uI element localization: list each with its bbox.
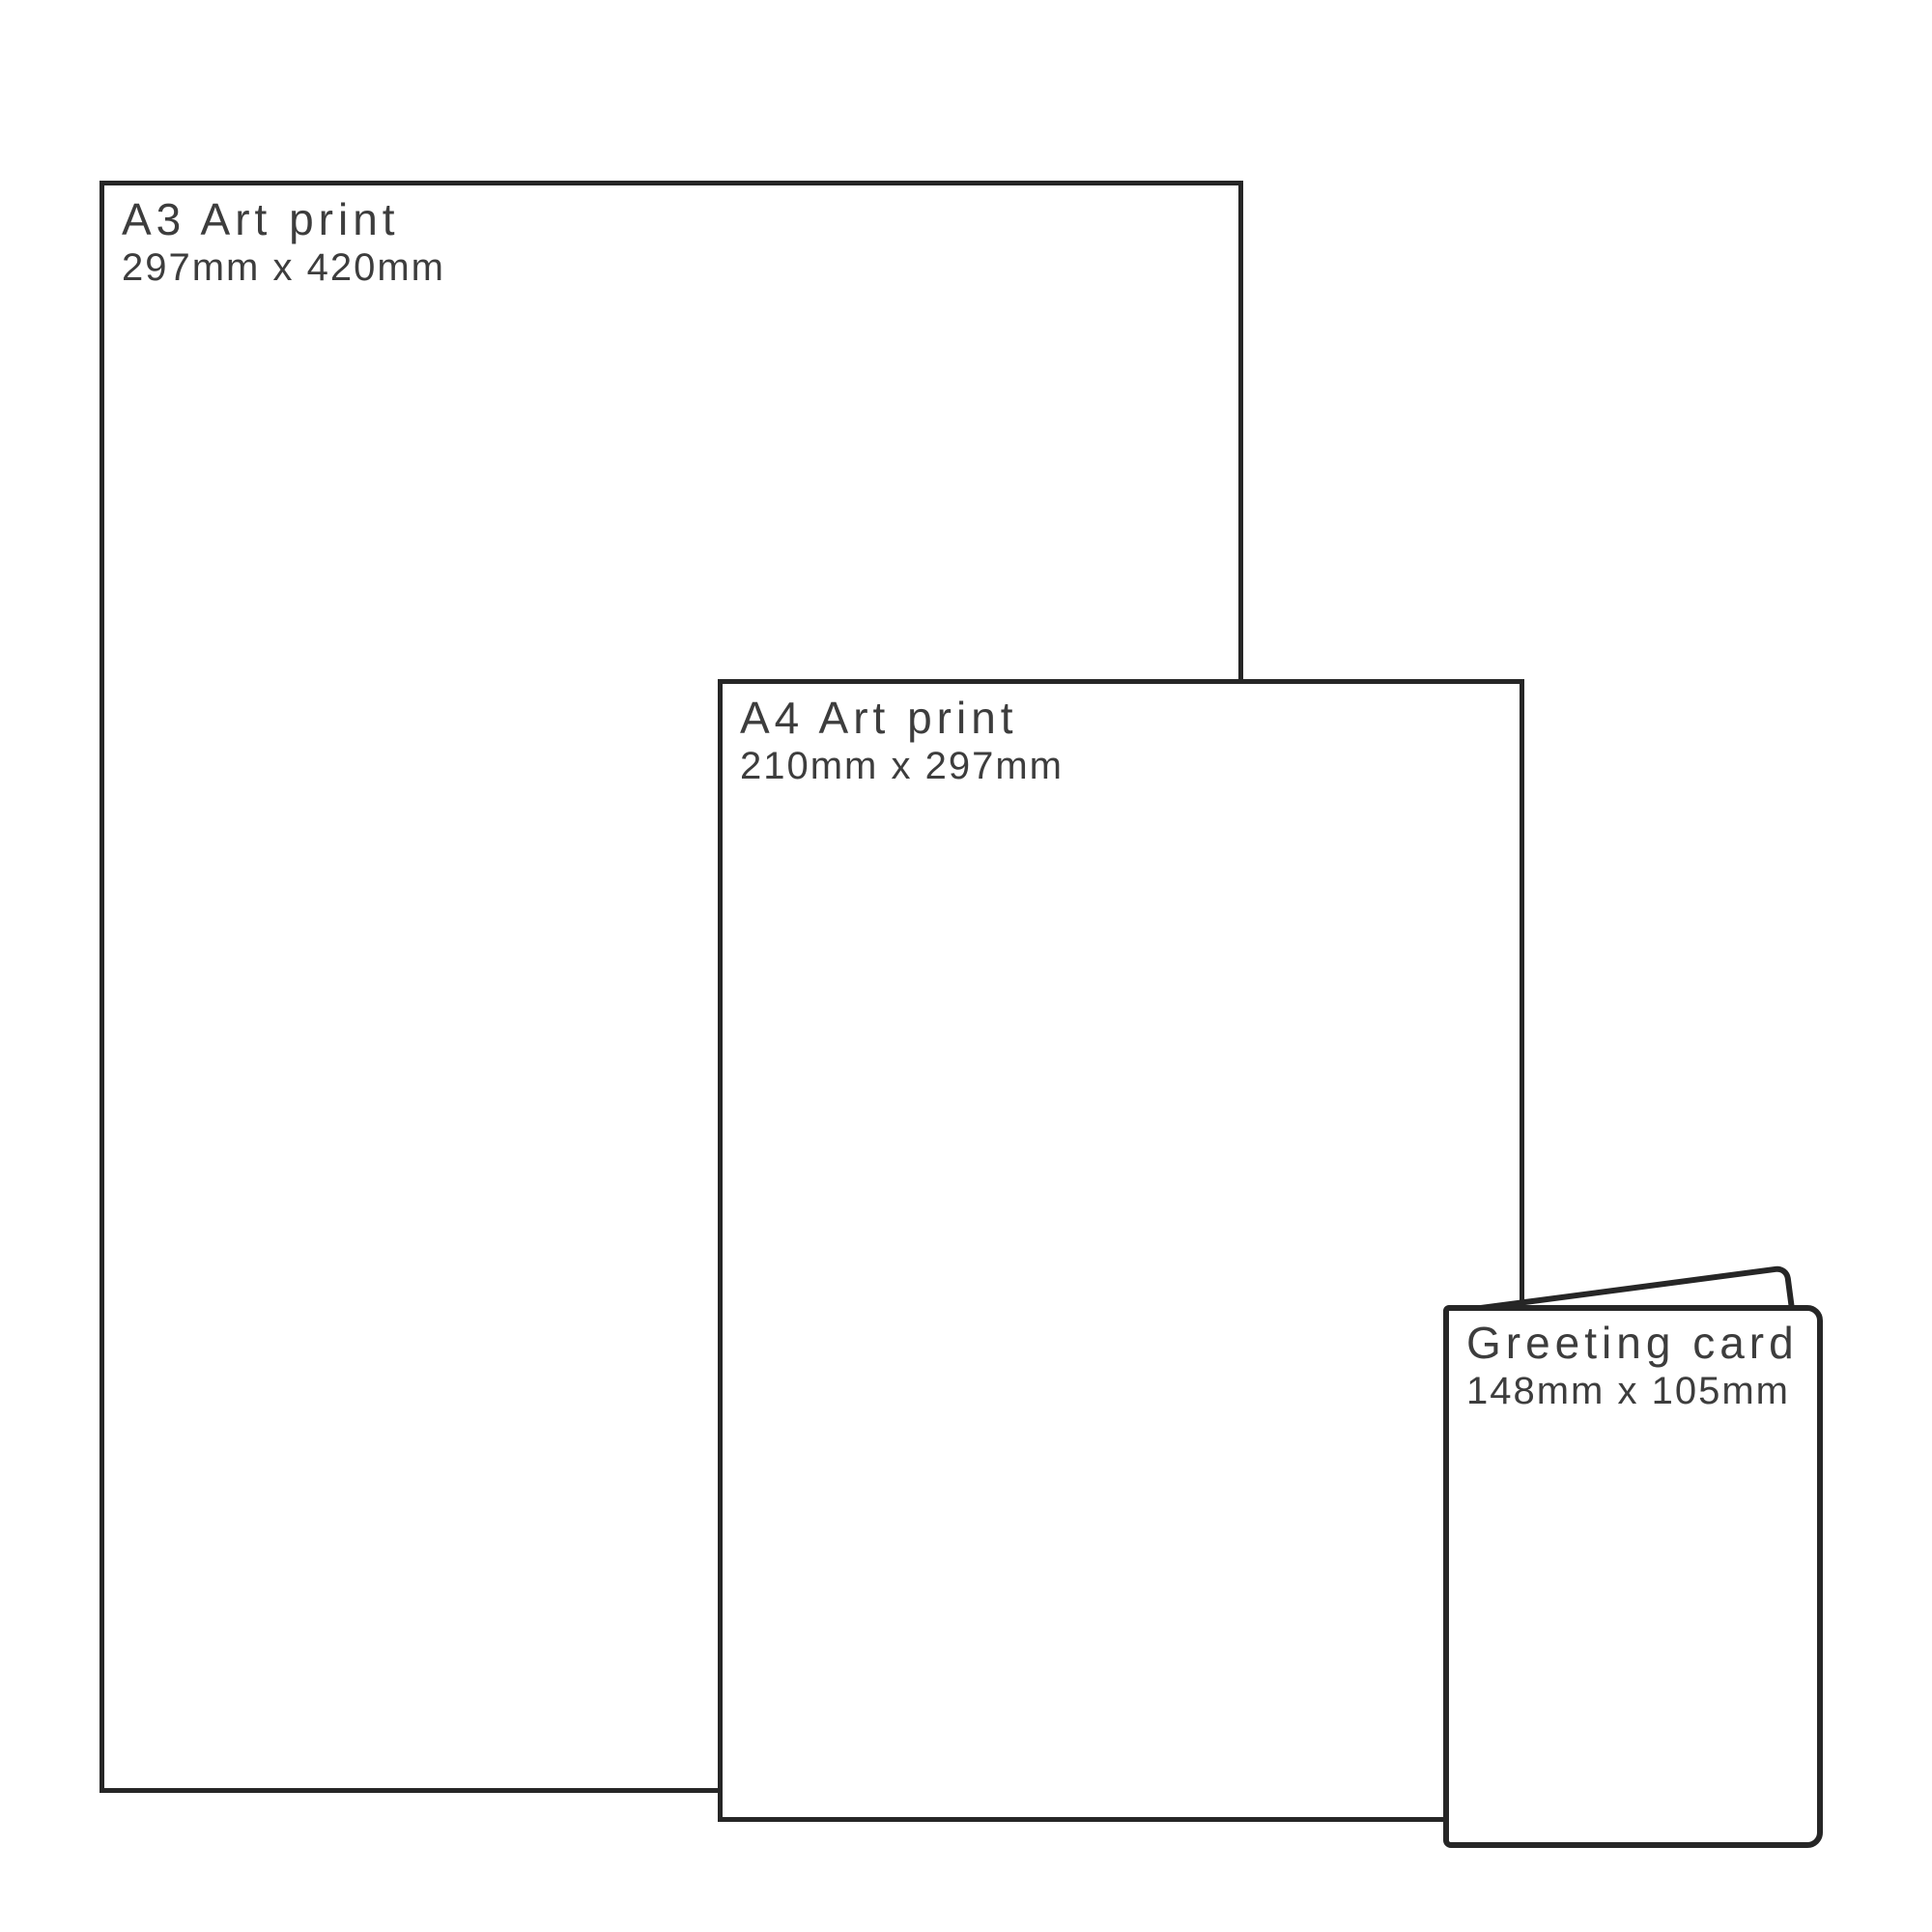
a4-title: A4 Art print <box>740 692 1064 744</box>
a4-label: A4 Art print 210mm x 297mm <box>740 692 1064 789</box>
greeting-card-dimensions: 148mm x 105mm <box>1466 1369 1799 1414</box>
a3-dimensions: 297mm x 420mm <box>122 245 445 291</box>
a4-dimensions: 210mm x 297mm <box>740 744 1064 789</box>
greeting-card-title: Greeting card <box>1466 1317 1799 1369</box>
a4-print-outline: A4 Art print 210mm x 297mm <box>718 679 1524 1822</box>
size-comparison-diagram: A3 Art print 297mm x 420mm A4 Art print … <box>0 0 1932 1932</box>
greeting-card-front: Greeting card 148mm x 105mm <box>1443 1305 1823 1848</box>
a3-title: A3 Art print <box>122 193 445 245</box>
greeting-card-label: Greeting card 148mm x 105mm <box>1466 1317 1799 1414</box>
a3-label: A3 Art print 297mm x 420mm <box>122 193 445 291</box>
